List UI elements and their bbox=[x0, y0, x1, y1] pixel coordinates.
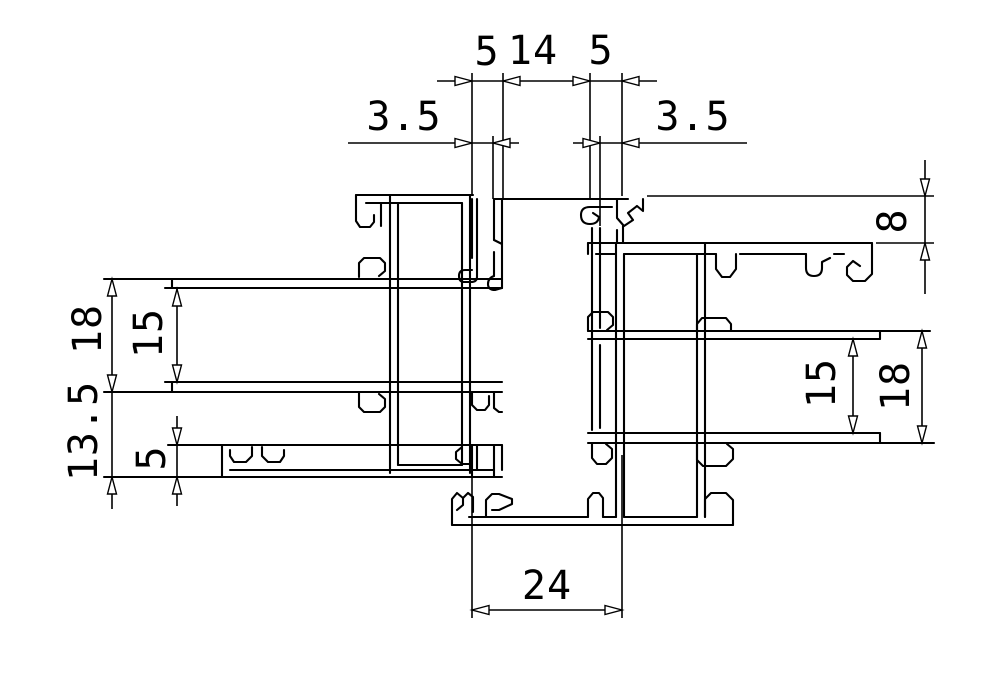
cad-drawing-canvas: 5 14 5 3.5 3.5 8 18 15 13.5 5 15 18 24 bbox=[0, 0, 1000, 681]
dim-label-top-middle: 14 bbox=[508, 31, 558, 71]
dim-label-upper-left: 3.5 bbox=[366, 97, 441, 137]
dim-label-right-outer: 18 bbox=[876, 361, 916, 411]
dim-label-top-left: 5 bbox=[474, 32, 499, 72]
right-profile-outline bbox=[452, 199, 934, 525]
dim-label-top-right: 5 bbox=[588, 31, 613, 71]
dim-label-left-outer: 18 bbox=[68, 304, 108, 354]
dim-label-left-channel: 5 bbox=[132, 445, 172, 470]
dim-label-bottom-width: 24 bbox=[522, 566, 572, 606]
dim-label-left-lower: 13.5 bbox=[64, 381, 104, 481]
dimension-arrowheads bbox=[108, 77, 930, 615]
dimension-lines bbox=[112, 81, 925, 610]
dim-label-right-inner: 15 bbox=[802, 358, 842, 408]
extension-lines bbox=[472, 73, 934, 618]
dim-label-left-inner: 15 bbox=[129, 308, 169, 358]
dim-label-right-top: 8 bbox=[873, 208, 913, 233]
dim-label-upper-right: 3.5 bbox=[655, 97, 730, 137]
